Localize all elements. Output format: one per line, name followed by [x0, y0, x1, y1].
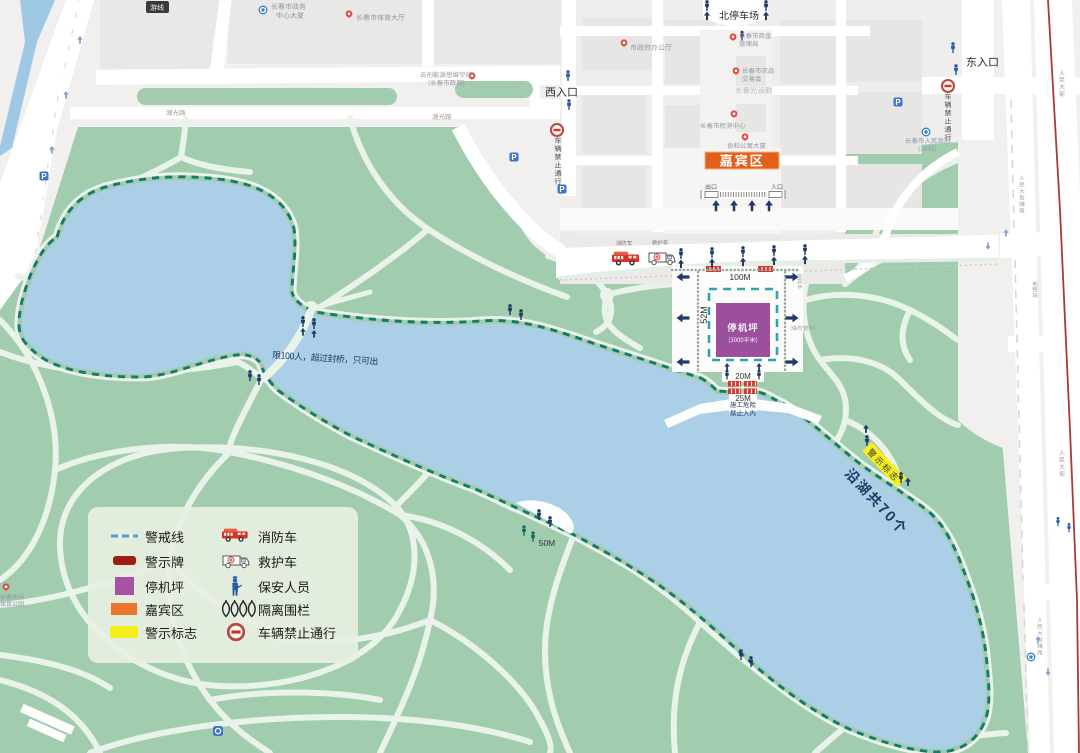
svg-text:52M: 52M: [699, 306, 709, 324]
svg-text:100M: 100M: [729, 272, 750, 282]
svg-text:50M: 50M: [539, 538, 556, 548]
svg-text:25M: 25M: [735, 394, 751, 403]
svg-text:20M: 20M: [735, 372, 751, 381]
